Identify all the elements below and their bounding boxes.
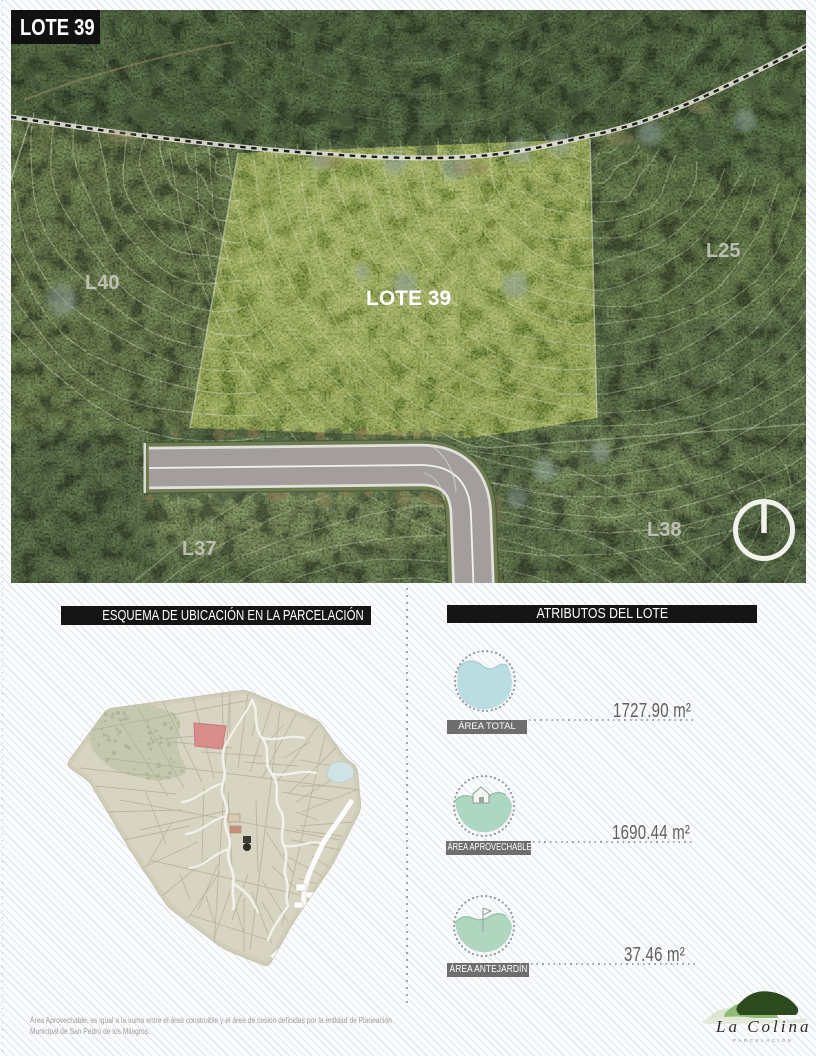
- svg-text:L37: L37: [182, 538, 216, 560]
- svg-text:PARCELACIÓN: PARCELACIÓN: [733, 1037, 794, 1043]
- svg-text:L38: L38: [647, 519, 681, 541]
- svg-text:LOTE 39: LOTE 39: [366, 287, 451, 310]
- svg-text:L40: L40: [85, 272, 119, 294]
- svg-text:La Colina: La Colina: [715, 1017, 810, 1036]
- svg-text:L25: L25: [706, 240, 740, 262]
